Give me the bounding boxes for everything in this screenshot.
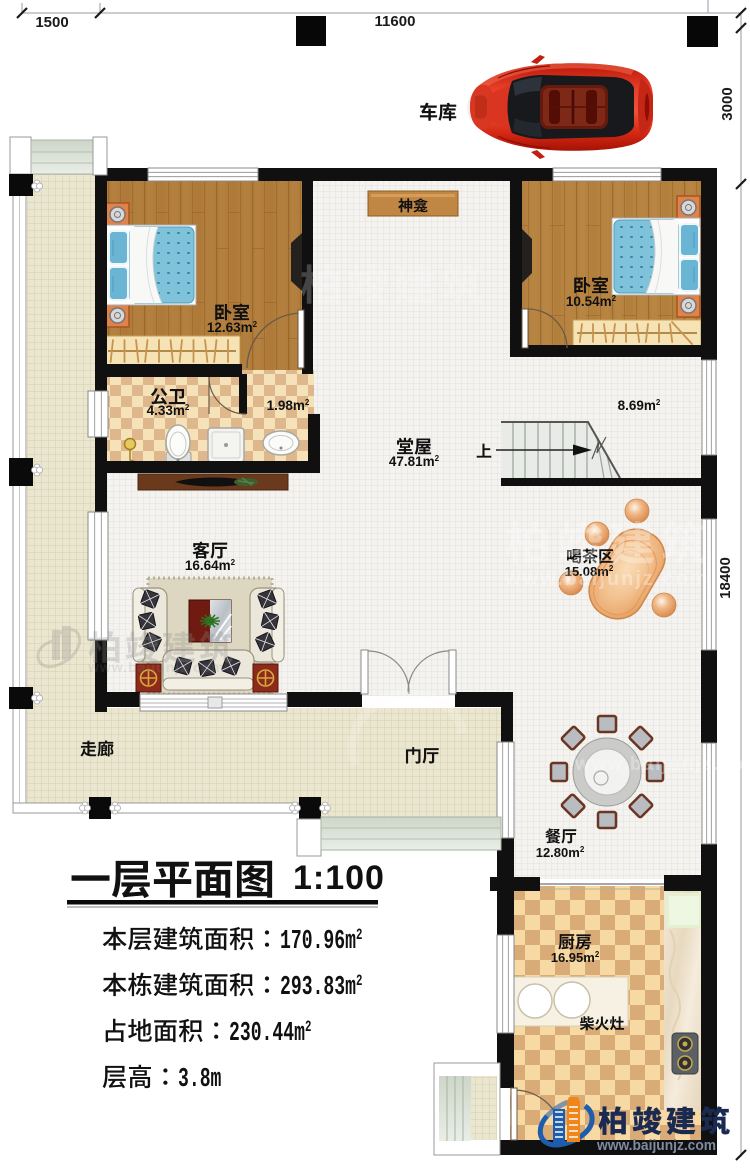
svg-text:12.80m2: 12.80m2 <box>536 845 585 860</box>
svg-text:1.98m2: 1.98m2 <box>267 398 310 413</box>
svg-text:1500: 1500 <box>35 14 68 31</box>
svg-text:3000: 3000 <box>719 87 736 120</box>
svg-text:1:100: 1:100 <box>293 859 385 897</box>
svg-text:www.baijunjz.com: www.baijunjz.com <box>87 659 225 675</box>
svg-text:16.95m2: 16.95m2 <box>551 950 600 965</box>
svg-text:47.81m2: 47.81m2 <box>389 454 440 469</box>
svg-text:12.63m2: 12.63m2 <box>207 320 258 335</box>
svg-text:10.54m2: 10.54m2 <box>566 294 617 309</box>
svg-text:230.44m2: 230.44m2 <box>229 1018 311 1049</box>
svg-text:www.baijunjz.com: www.baijunjz.com <box>596 1138 716 1155</box>
svg-text:170.96m2: 170.96m2 <box>280 926 362 957</box>
svg-text:www.baijunjz.com: www.baijunjz.com <box>574 754 750 775</box>
svg-text:www.baijunjz.com: www.baijunjz.com <box>504 568 710 590</box>
svg-text:3.8m: 3.8m <box>178 1064 221 1095</box>
svg-text:18400: 18400 <box>717 557 734 599</box>
svg-text:293.83m2: 293.83m2 <box>280 972 362 1003</box>
svg-text:4.33m2: 4.33m2 <box>147 403 190 418</box>
svg-text:16.64m2: 16.64m2 <box>185 558 236 573</box>
svg-text:8.69m2: 8.69m2 <box>618 398 661 413</box>
svg-text:11600: 11600 <box>375 13 416 30</box>
